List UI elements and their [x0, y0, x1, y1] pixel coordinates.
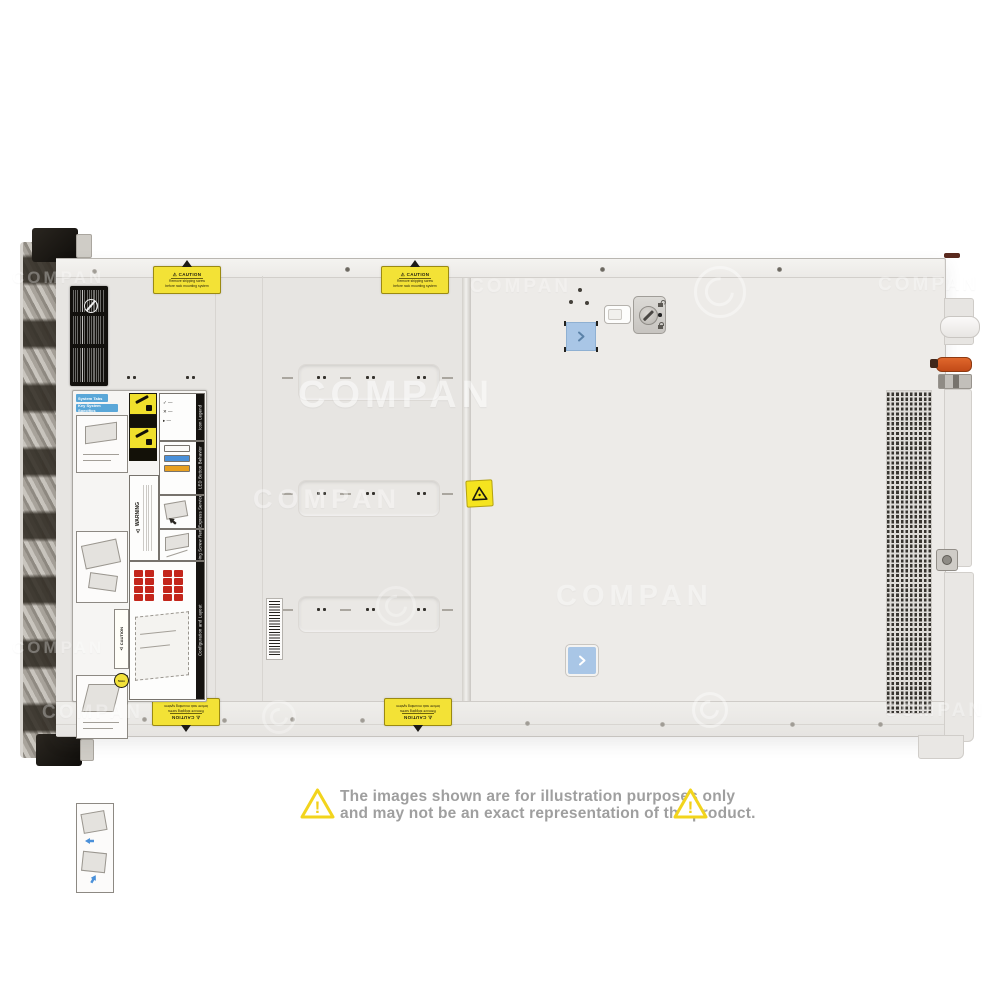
- vent-grille: [886, 390, 932, 714]
- caution-sticker-rotated: ⚠ CAUTION Remove shipping screw before r…: [152, 698, 220, 726]
- panel-seam: [262, 276, 263, 701]
- chevron-right-icon: [577, 331, 585, 342]
- screw: [360, 718, 365, 723]
- label-tab: Key System Specifics: [76, 404, 118, 412]
- rack-ear-tab-bottom: [80, 739, 94, 761]
- caution-sticker: ⚠ CAUTION Remove shipping screw before r…: [381, 266, 449, 294]
- latch-release-button: [566, 322, 596, 351]
- screw: [878, 722, 883, 727]
- right-top-cover: [470, 276, 944, 701]
- shipping-screw-mark: [944, 253, 960, 258]
- padlock-open-icon: [658, 303, 663, 307]
- screw: [790, 722, 795, 727]
- screw: [777, 267, 782, 272]
- label-section-shipping-screw: Shipping Screw Removal: [159, 529, 205, 561]
- cover-recess: [298, 596, 440, 633]
- product-photo-server-top-view: ⚠ CAUTION Remove shipping screw before r…: [0, 0, 1000, 1000]
- rack-ear-top: [32, 228, 78, 262]
- caution-sticker-rotated: ⚠ CAUTION Remove shipping screw before r…: [384, 698, 452, 726]
- screw: [290, 717, 295, 722]
- screw: [525, 721, 530, 726]
- panel-seam: [215, 276, 216, 701]
- screw: [345, 267, 350, 272]
- led-bar-blue: [164, 455, 190, 462]
- label-diagram: [76, 415, 128, 473]
- caution-line: before rack mounting system: [165, 285, 209, 289]
- screw: [222, 718, 227, 723]
- label-section-service-tag: Rear Express Service Tag: [159, 495, 205, 529]
- lid-screw: [569, 300, 573, 304]
- warning-triangle-icon: !: [672, 787, 709, 820]
- certification-mark-icon: [84, 299, 98, 313]
- lock-slider: [604, 305, 631, 324]
- screw: [142, 717, 147, 722]
- label-warning-column: ⚠ WARNING: [129, 475, 159, 561]
- rack-ear-tab-top: [76, 234, 92, 258]
- padlock-closed-icon: [658, 325, 663, 329]
- hazard-sticker: [465, 479, 493, 507]
- label-tab: System Tabs: [76, 394, 108, 402]
- label-diagram: [76, 531, 128, 603]
- cover-recess: [298, 364, 440, 401]
- led-bar-amber: [164, 465, 190, 472]
- lock-indicator-dot: [658, 313, 662, 317]
- rear-handle: [940, 316, 980, 338]
- lid-screw: [578, 288, 582, 292]
- drive-bay-grid: [134, 570, 154, 601]
- rear-panel-upper: [944, 389, 972, 567]
- caution-title: ⚠ CAUTION: [171, 272, 204, 279]
- lid-screw: [585, 301, 589, 305]
- label-caution-strip: ⚠ CAUTION: [114, 609, 129, 669]
- pinch-hazard-pictograms: [129, 393, 157, 461]
- barcode-label: [266, 598, 283, 660]
- cover-recess: [298, 480, 440, 517]
- disclaimer-bar: ! The images shown are for illustration …: [0, 786, 1000, 830]
- drive-bay-grid: [163, 570, 183, 601]
- release-lever-tip: [930, 359, 938, 368]
- warning-triangle-icon: [471, 486, 489, 502]
- regulatory-label: [70, 286, 108, 386]
- caution-line: Remove shipping screw: [169, 280, 205, 284]
- rear-foot: [918, 735, 964, 759]
- caution-sticker: ⚠ CAUTION Remove shipping screw before r…: [153, 266, 221, 294]
- warning-triangle-icon: !: [299, 787, 336, 820]
- timer-badge: 5min: [114, 673, 129, 688]
- thumbscrew: [936, 549, 958, 571]
- service-instruction-label: System Tabs Key System Specifics: [72, 390, 207, 702]
- screw: [660, 722, 665, 727]
- release-lever-orange: [936, 357, 972, 372]
- screw-marks-row: [90, 375, 470, 381]
- screw: [92, 269, 97, 274]
- rear-latch: [938, 374, 972, 389]
- chevron-right-icon: [578, 655, 586, 666]
- svg-text:!: !: [688, 798, 694, 817]
- svg-text:!: !: [315, 798, 321, 817]
- cover-keylock: [633, 296, 666, 334]
- label-section-led-behavior: LED Button Behavior: [159, 441, 205, 495]
- keylock-icon: [639, 306, 658, 325]
- rear-panel-lower: [944, 572, 974, 742]
- disclaimer-text: The images shown are for illustration pu…: [340, 788, 660, 822]
- latch-release-button: [566, 645, 598, 676]
- screw: [600, 267, 605, 272]
- label-section-configuration: Configuration and Layout: [129, 561, 205, 700]
- led-bar-white: [164, 445, 190, 452]
- label-section-icon-legend: ✓ —✕ —▸ — Icon Legend: [159, 393, 205, 441]
